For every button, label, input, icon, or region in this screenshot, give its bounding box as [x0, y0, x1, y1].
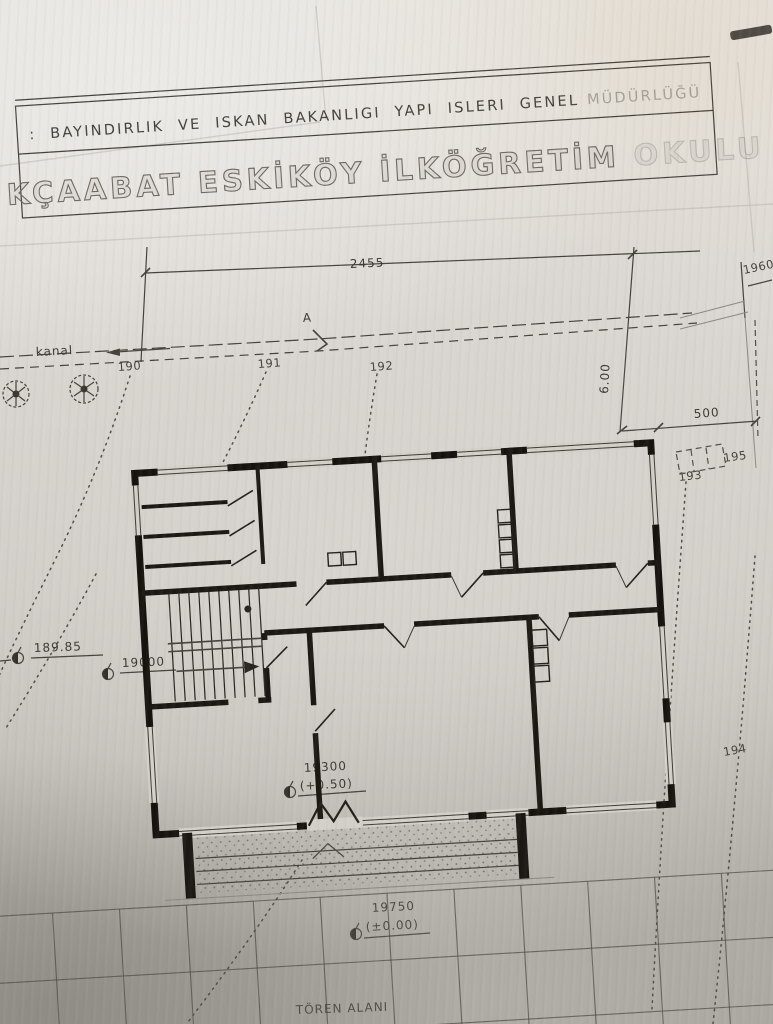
staircase — [165, 588, 265, 701]
level-1960-label: 1960 — [742, 257, 773, 277]
radiator — [497, 509, 514, 568]
contour-190-label: 190 — [117, 358, 141, 374]
canal-label: kanal — [35, 343, 73, 359]
dimension-600: 6.00 — [597, 247, 634, 434]
contour-195-label: 195 — [722, 448, 747, 465]
radiator — [532, 629, 550, 682]
trees — [3, 375, 98, 407]
pen-mark — [730, 24, 773, 40]
school-title: KÇAABAT ESKİKÖY İLKÖĞRETİMOKULU — [6, 130, 766, 212]
dim-500-label: 500 — [693, 405, 720, 421]
tree-icon — [70, 375, 98, 403]
tree-icon — [3, 381, 29, 407]
door-leaves — [262, 563, 657, 734]
canal: kanal — [0, 313, 697, 369]
contour-193-label: 193 — [678, 468, 703, 484]
scanned-site-plan-photo: : BAYINDIRLIK VE ISKAN BAKANLIGI YAPI IS… — [0, 0, 773, 1024]
title-block: : BAYINDIRLIK VE ISKAN BAKANLIGI YAPI IS… — [1, 53, 766, 218]
window — [662, 722, 676, 784]
radiator — [328, 551, 357, 566]
wc-stalls — [141, 490, 257, 571]
window — [646, 454, 660, 524]
benchmark-19300-offset: (+0.50) — [299, 776, 353, 793]
window — [527, 439, 634, 455]
benchmark-19750: 19750 (±0.00) — [351, 899, 431, 940]
benchmark-19300-label: 19300 — [303, 759, 347, 775]
dim-2455-label: 2455 — [350, 256, 385, 271]
section-marker-label: A — [302, 311, 312, 325]
site-plan-drawing: : BAYINDIRLIK VE ISKAN BAKANLIGI YAPI IS… — [0, 0, 773, 1024]
window — [381, 451, 432, 464]
boundary-lines — [680, 262, 756, 468]
section-marker: A — [302, 311, 327, 351]
benchmark-19750-label: 19750 — [371, 899, 415, 915]
window — [566, 800, 656, 815]
benchmark-19750-offset: (±0.00) — [365, 917, 419, 934]
canal-flow-arrow — [106, 349, 120, 357]
benchmark-18985: 189.85 — [0, 639, 103, 663]
contour-192-label: 192 — [369, 358, 393, 374]
ceremony-area-label: TÖREN ALANI — [295, 998, 389, 1017]
ministry-line-end: MÜDÜRLÜĞÜ — [586, 83, 702, 108]
school-title-end: OKULU — [633, 130, 766, 172]
stair-direction-arrow — [244, 660, 260, 673]
interior-walls — [134, 440, 672, 835]
benchmark-19300: 19300 (+0.50) — [285, 759, 367, 798]
window — [657, 626, 671, 698]
window — [287, 457, 333, 470]
dim-600-label: 6.00 — [597, 363, 613, 394]
contour-194-label: 194 — [722, 741, 748, 759]
dimension-500: 500 — [622, 320, 760, 440]
window — [130, 485, 143, 536]
school-title-start: KÇAABAT ESKİKÖY İLKÖĞRETİM — [6, 139, 621, 211]
benchmark-18985-label: 189.85 — [34, 639, 82, 655]
contour-191-label: 191 — [257, 355, 281, 371]
building — [0, 429, 773, 1024]
dimension-2455: 2455 — [141, 247, 700, 362]
window — [457, 447, 502, 460]
window — [157, 463, 227, 477]
benchmark-19000: 19000 — [103, 654, 177, 679]
ministry-line: : BAYINDIRLIK VE ISKAN BAKANLIGI YAPI IS… — [29, 83, 702, 143]
window — [145, 727, 159, 803]
level-1960: 1960 — [742, 257, 773, 286]
